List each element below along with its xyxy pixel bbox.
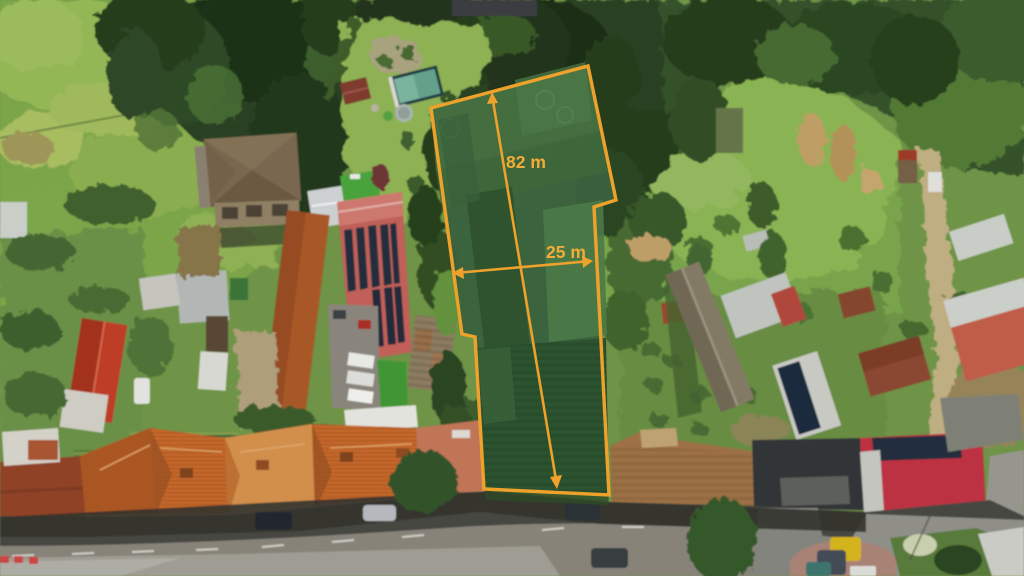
svg-text:25 m: 25 m — [546, 242, 586, 262]
svg-text:82 m: 82 m — [506, 152, 546, 172]
